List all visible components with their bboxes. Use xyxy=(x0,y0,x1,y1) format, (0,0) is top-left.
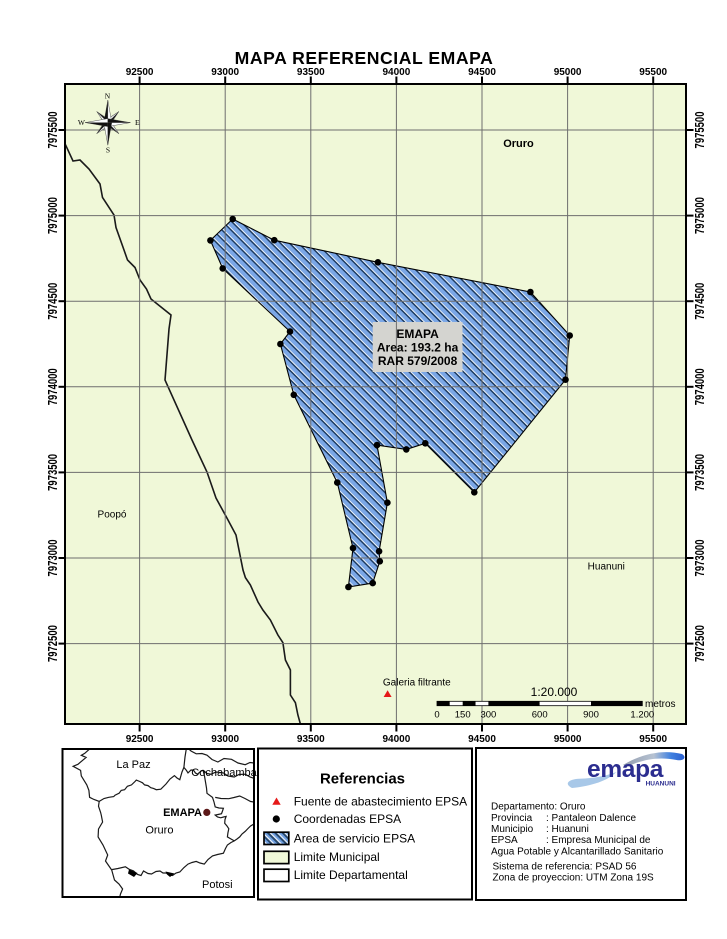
svg-text:Agua Potable y Alcantarillado: Agua Potable y Alcantarillado Sanitario xyxy=(491,846,664,857)
svg-text:HUANUNI: HUANUNI xyxy=(646,781,676,788)
svg-text:EPSA: EPSA xyxy=(491,835,518,846)
svg-text:600: 600 xyxy=(532,710,548,721)
svg-text:93500: 93500 xyxy=(297,67,325,78)
svg-text:92500: 92500 xyxy=(126,67,154,78)
svg-text:Coordenadas EPSA: Coordenadas EPSA xyxy=(294,812,401,826)
svg-text:Provincia: Provincia xyxy=(491,813,533,824)
svg-text:900: 900 xyxy=(583,710,599,721)
svg-text:Departamento: Oruro: Departamento: Oruro xyxy=(491,802,586,813)
svg-text:Galeria filtrante: Galeria filtrante xyxy=(383,678,451,689)
svg-text:95000: 95000 xyxy=(554,67,582,78)
svg-text:93500: 93500 xyxy=(297,734,325,745)
svg-text:7972500: 7972500 xyxy=(694,625,708,662)
svg-text:Limite Departamental: Limite Departamental xyxy=(294,868,408,882)
svg-text:Municipio: Municipio xyxy=(491,824,534,835)
svg-text:7973500: 7973500 xyxy=(47,454,61,491)
svg-text:7975000: 7975000 xyxy=(694,197,708,234)
svg-text:7972500: 7972500 xyxy=(47,625,61,662)
svg-text:Referencias: Referencias xyxy=(320,771,405,788)
svg-text:EMAPA: EMAPA xyxy=(163,807,202,819)
svg-text:Zona de proyeccion: UTM Zona 1: Zona de proyeccion: UTM Zona 19S xyxy=(493,873,655,884)
svg-text:7973500: 7973500 xyxy=(694,454,708,491)
svg-text:1:20.000: 1:20.000 xyxy=(531,685,578,699)
svg-text:RAR 579/2008: RAR 579/2008 xyxy=(378,354,458,368)
svg-text:0: 0 xyxy=(434,710,439,721)
svg-text:7975500: 7975500 xyxy=(694,112,708,149)
svg-text:7975000: 7975000 xyxy=(47,197,61,234)
svg-text:Area de servicio EPSA: Area de servicio EPSA xyxy=(294,832,415,846)
svg-text:95500: 95500 xyxy=(639,67,667,78)
svg-text:93000: 93000 xyxy=(211,734,239,745)
svg-text:Oruro: Oruro xyxy=(503,138,534,150)
svg-text:7973000: 7973000 xyxy=(47,540,61,577)
svg-text:Sistema de referencia: PSAD 56: Sistema de referencia: PSAD 56 xyxy=(493,862,637,873)
svg-text:94000: 94000 xyxy=(382,67,410,78)
svg-text:: Huanuni: : Huanuni xyxy=(546,824,589,835)
svg-text:150: 150 xyxy=(455,710,471,721)
svg-text:EMAPA: EMAPA xyxy=(396,327,439,341)
svg-text:Cochabamba: Cochabamba xyxy=(191,767,257,779)
svg-text:300: 300 xyxy=(480,710,496,721)
svg-text:emapa: emapa xyxy=(587,756,664,783)
svg-text:94500: 94500 xyxy=(468,67,496,78)
svg-text:92500: 92500 xyxy=(126,734,154,745)
svg-text:S: S xyxy=(106,146,110,155)
svg-text:N: N xyxy=(105,92,111,101)
svg-text:W: W xyxy=(78,118,86,127)
svg-text:94000: 94000 xyxy=(382,734,410,745)
svg-text:metros: metros xyxy=(645,699,676,710)
svg-text:95000: 95000 xyxy=(554,734,582,745)
svg-text:93000: 93000 xyxy=(211,67,239,78)
svg-text:: Pantaleon Dalence: : Pantaleon Dalence xyxy=(546,813,637,824)
svg-text:1.200: 1.200 xyxy=(630,710,654,721)
svg-text:Oruro: Oruro xyxy=(145,825,173,837)
svg-text:7974000: 7974000 xyxy=(47,368,61,405)
svg-text:95500: 95500 xyxy=(639,734,667,745)
svg-text:La Paz: La Paz xyxy=(116,759,150,771)
svg-text:7974000: 7974000 xyxy=(694,368,708,405)
svg-text:Fuente de abastecimiento EPSA: Fuente de abastecimiento EPSA xyxy=(294,795,467,809)
svg-text:: Empresa Municipal de: : Empresa Municipal de xyxy=(546,835,651,846)
svg-text:Limite Municipal: Limite Municipal xyxy=(294,850,380,864)
svg-text:Area: 193.2 ha: Area: 193.2 ha xyxy=(377,341,459,355)
svg-text:E: E xyxy=(135,118,140,127)
svg-text:MAPA REFERENCIAL EMAPA: MAPA REFERENCIAL EMAPA xyxy=(235,48,494,68)
svg-text:7975500: 7975500 xyxy=(47,112,61,149)
svg-text:94500: 94500 xyxy=(468,734,496,745)
svg-text:7973000: 7973000 xyxy=(694,540,708,577)
svg-text:7974500: 7974500 xyxy=(694,283,708,320)
svg-text:Poopó: Poopó xyxy=(98,510,127,521)
svg-text:7974500: 7974500 xyxy=(47,283,61,320)
svg-text:Potosi: Potosi xyxy=(202,879,233,891)
svg-text:Huanuni: Huanuni xyxy=(588,562,625,573)
